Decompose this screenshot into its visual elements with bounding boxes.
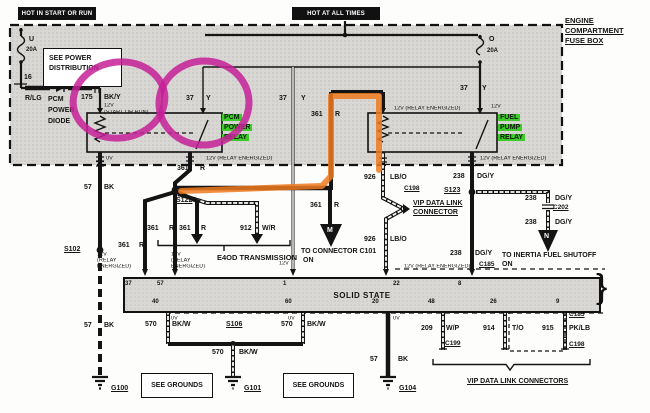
- fuse-o-amps: 20A: [487, 48, 498, 54]
- solid-state-brace: }: [596, 268, 607, 307]
- color-lbo-top: LB/O: [390, 174, 407, 181]
- color-y-fuse: Y: [482, 85, 487, 92]
- vip-connector-l1: VIP DATA LINK: [413, 200, 463, 207]
- color-r-pin37: R: [139, 242, 144, 249]
- pin-bot-26: 26: [490, 299, 497, 305]
- fuel-relay-label-2: PUMP: [498, 124, 522, 131]
- circuit-57-g104: 57: [370, 356, 378, 363]
- connector-c198-vip: C198: [569, 342, 585, 349]
- circuit-912: 912: [240, 225, 252, 232]
- wiring-diagram: HOT IN START OR RUN HOT AT ALL TIMES ENG…: [0, 0, 650, 413]
- volt-0v-pin20: 0V: [393, 316, 400, 322]
- see-power-l1: SEE POWER: [49, 55, 91, 62]
- color-bk-top: BK: [104, 184, 114, 191]
- see-grounds-text-2: SEE GROUNDS: [293, 382, 345, 389]
- fusebox-title-3: FUSE BOX: [565, 37, 603, 45]
- solid-state-module: SOLID STATE: [123, 277, 601, 313]
- vip-connector-l2: CONNECTOR: [413, 209, 458, 216]
- fusebox-title-1: ENGINE: [565, 17, 594, 25]
- circuit-361-pin37: 361: [118, 242, 130, 249]
- fuse-u-amps: 20A: [26, 47, 37, 53]
- color-dgy-a: DG/Y: [477, 173, 494, 180]
- vip-connectors-label: VIP DATA LINK CONNECTORS: [467, 378, 568, 385]
- connector-c202: C202: [553, 205, 569, 212]
- connector-c185-vip: C185: [569, 312, 585, 319]
- to-connector-c101-on: ON: [303, 257, 314, 264]
- volt-re1-b: 12V: [171, 252, 181, 258]
- circuit-570-c: 570: [212, 349, 224, 356]
- see-power-l2: DISTRIBUTION: [49, 65, 99, 72]
- see-grounds-box-1: SEE GROUNDS: [141, 373, 213, 398]
- see-power-distribution-box: SEE POWER DISTRIBUTION: [43, 48, 122, 87]
- color-r-pin57: R: [169, 225, 174, 232]
- circuit-175: 175: [81, 94, 93, 101]
- volt-re2-b: (RELAY: [171, 258, 191, 264]
- color-to: T/O: [512, 325, 524, 332]
- circuit-37-pin1: 37: [279, 95, 287, 102]
- fuse-u-pin: 16: [24, 74, 32, 81]
- splice-s106: S106: [226, 321, 242, 328]
- volt-12vre-fuelcoil: 12V (RELAY ENERGIZED): [394, 106, 460, 112]
- pin-top-22: 22: [393, 281, 400, 287]
- color-r-m: R: [334, 202, 339, 209]
- circuit-926-top: 926: [364, 174, 376, 181]
- fuel-relay-label-1: FUEL: [498, 114, 520, 121]
- to-inertia-on: ON: [502, 261, 513, 268]
- circuit-57-bottom: 57: [84, 322, 92, 329]
- labels-layer: HOT IN START OR RUN HOT AT ALL TIMES ENG…: [0, 0, 650, 413]
- color-pklb: PK/LB: [569, 325, 590, 332]
- volt-0v-pcmrelay: 0V: [106, 156, 113, 162]
- wire-rlg-label: R/LG: [25, 95, 42, 102]
- pin-top-57: 57: [157, 281, 164, 287]
- circuit-914: 914: [483, 325, 495, 332]
- see-grounds-text-1: SEE GROUNDS: [151, 382, 203, 389]
- e4od-label: E4OD TRANSMISSION: [217, 254, 297, 262]
- color-bkw-a: BK/W: [172, 321, 191, 328]
- volt-12v-bky: 12V: [104, 103, 114, 109]
- circuit-37-pcmrelay: 37: [186, 95, 194, 102]
- pin-top-37: 37: [125, 281, 132, 287]
- to-inertia-label: TO INERTIA FUEL SHUTOFF: [502, 252, 596, 259]
- circuit-37-fuse: 37: [460, 85, 468, 92]
- solid-state-label: SOLID STATE: [333, 291, 390, 300]
- color-bky: BK/Y: [104, 94, 121, 101]
- pcm-diode-l1: PCM: [48, 96, 64, 103]
- circuit-361-m: 361: [310, 202, 322, 209]
- ground-g101: G101: [244, 385, 261, 392]
- pcm-diode-l2: POWER: [48, 107, 74, 114]
- color-bkw-c: BK/W: [239, 349, 258, 356]
- volt-re3-a: ENERGIZED): [97, 264, 131, 270]
- connector-c198: C198: [404, 186, 420, 193]
- see-grounds-box-2: SEE GROUNDS: [283, 373, 354, 398]
- circuit-238-c: 238: [525, 219, 537, 226]
- pcm-relay-label-3: RELAY: [222, 134, 249, 141]
- color-y-pin1: Y: [301, 95, 306, 102]
- fuse-o-letter: O: [489, 36, 494, 43]
- color-dgy-b: DG/Y: [555, 195, 572, 202]
- circuit-915: 915: [542, 325, 554, 332]
- pin-bot-48: 48: [428, 299, 435, 305]
- volt-12vre-fuelout: 12V (RELAY ENERGIZED): [480, 156, 546, 162]
- splice-s102: S102: [64, 246, 80, 253]
- splice-s122: S122: [176, 197, 192, 204]
- circuit-238-a: 238: [453, 173, 465, 180]
- circuit-238-d: 238: [450, 250, 462, 257]
- pin-bot-60: 60: [285, 299, 292, 305]
- circuit-570-b: 570: [281, 321, 293, 328]
- ground-g100: G100: [111, 385, 128, 392]
- color-bk-g104: BK: [398, 356, 408, 363]
- circuit-361-e4od: 361: [179, 225, 191, 232]
- color-dgy-c: DG/Y: [555, 219, 572, 226]
- connector-c185-top: C185: [479, 262, 495, 269]
- color-r-out: R: [200, 165, 205, 172]
- cond-start-or-run: (START OR RUN): [104, 110, 148, 116]
- color-lbo-bot: LB/O: [390, 236, 407, 243]
- circuit-361-riser: 361: [311, 111, 323, 118]
- pin-top-1: 1: [283, 281, 286, 287]
- splice-s123: S123: [444, 187, 460, 194]
- n-arrow-letter: N: [544, 233, 549, 240]
- color-wp: W/P: [446, 325, 459, 332]
- pin-bot-40: 40: [152, 299, 159, 305]
- circuit-361-out: 361: [177, 165, 189, 172]
- volt-re2-a: (RELAY: [97, 258, 117, 264]
- circuit-209: 209: [421, 325, 433, 332]
- volt-re1-a: 12V: [97, 252, 107, 258]
- pin-bot-20: 20: [372, 299, 379, 305]
- to-connector-c101: TO CONNECTOR C101: [301, 248, 376, 255]
- color-y-pcmrelay: Y: [206, 95, 211, 102]
- ground-g104: G104: [399, 385, 416, 392]
- pin-bot-9: 9: [556, 299, 559, 305]
- color-wr: W/R: [262, 225, 276, 232]
- color-bk-bottom: BK: [104, 322, 114, 329]
- hot-at-all-times-banner: HOT AT ALL TIMES: [292, 7, 380, 20]
- color-bkw-b: BK/W: [307, 321, 326, 328]
- m-arrow-letter: M: [327, 227, 333, 234]
- color-r-e4od: R: [201, 225, 206, 232]
- volt-12vre-c185: 12V (RELAY ENERGIZED): [404, 264, 470, 270]
- circuit-570-a: 570: [145, 321, 157, 328]
- pcm-relay-label-2: POWER: [222, 124, 252, 131]
- pin-top-8: 8: [458, 281, 461, 287]
- circuit-57-top: 57: [84, 184, 92, 191]
- connector-c199: C199: [445, 341, 461, 348]
- circuit-926-bot: 926: [364, 236, 376, 243]
- pcm-diode-l3: DIODE: [48, 118, 70, 125]
- circuit-238-b: 238: [525, 195, 537, 202]
- circuit-361-pin57: 361: [147, 225, 159, 232]
- fuse-u-letter: U: [29, 36, 34, 43]
- hot-in-start-banner: HOT IN START OR RUN: [18, 7, 96, 20]
- volt-12vre-pcmrelay: 12V (RELAY ENERGIZED): [206, 156, 272, 162]
- fusebox-title-2: COMPARTMENT: [565, 27, 624, 35]
- pcm-relay-label-1: PCM: [222, 114, 242, 121]
- color-r-riser: R: [335, 111, 340, 118]
- color-dgy-d: DG/Y: [475, 250, 492, 257]
- fuel-relay-label-3: RELAY: [498, 134, 525, 141]
- volt-12v-fuelrelay: 12V: [491, 104, 501, 110]
- volt-re3-b: ENERGIZED): [171, 264, 205, 270]
